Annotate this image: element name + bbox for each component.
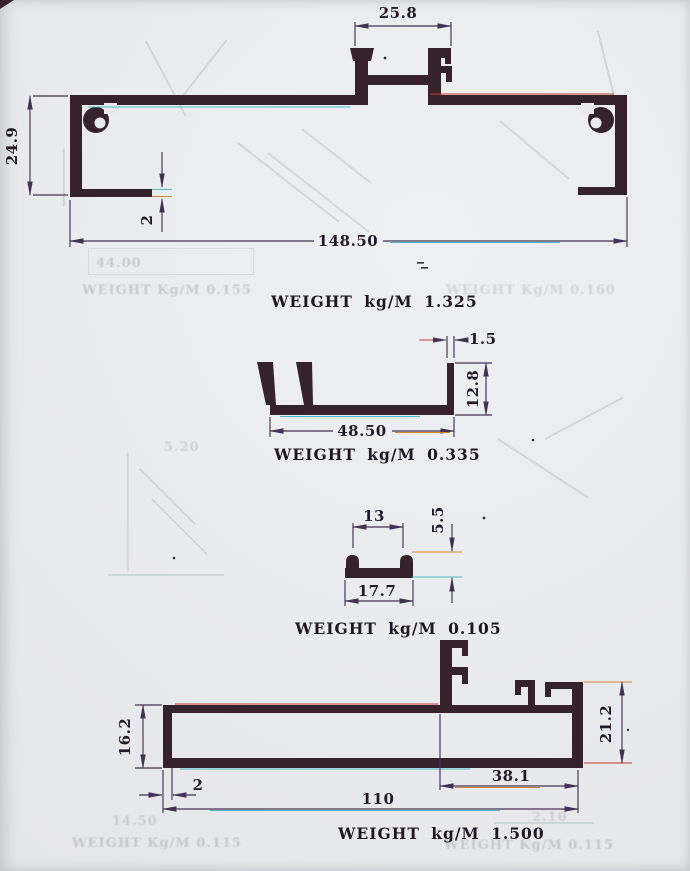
weight-caption-profile-4: WEIGHT kg/M 1.500: [337, 824, 545, 843]
dim-label-flange-thickness: 2: [138, 215, 156, 226]
dim-label-wall-thickness: 1.5: [469, 330, 497, 348]
profile-1-cross-section: [70, 48, 627, 197]
dim-label-left-height: 16.2: [116, 718, 134, 757]
profile-2-cross-section: [257, 362, 454, 415]
weight-caption-profile-2: WEIGHT kg/M 0.335: [273, 445, 481, 464]
figure-profile-1: 25.8 24.9 2 148.50 WEIGHT kg/M 1.325: [3, 4, 627, 311]
scan-corner-mark: [0, 0, 14, 9]
figure-profile-3: 13 5.5 17.7 WEIGHT kg/M 0.105: [294, 506, 502, 638]
dim-label-right-height: 12.8: [464, 370, 482, 409]
dim-label-height: 5.5: [429, 506, 447, 534]
profile-1-dimension-lines: [30, 22, 627, 247]
dim-label-base-width: 17.7: [358, 582, 397, 600]
figure-profile-4: 16.2 2 38.1 110 21.2 WEIGHT kg/M 1.500: [116, 640, 632, 843]
weight-caption-profile-3: WEIGHT kg/M 0.105: [294, 619, 502, 638]
profile-3-cross-section: [345, 555, 413, 578]
figure-profile-2: 1.5 12.8 48.50 WEIGHT kg/M 0.335: [257, 330, 497, 464]
extrusion-profiles-drawing: 25.8 24.9 2 148.50 WEIGHT kg/M 1.325: [0, 0, 690, 871]
dim-label-left-height: 24.9: [3, 127, 21, 166]
dim-label-wall-thickness: 2: [193, 776, 204, 794]
dim-label-overall-width: 148.50: [318, 232, 378, 250]
dim-label-top-width: 25.8: [379, 4, 418, 22]
scanned-drawing-page: 44.00 WEIGHT Kg/M 0.155 WEIGHT Kg/M 0.16…: [0, 0, 690, 871]
dim-label-base-width: 48.50: [337, 422, 386, 440]
dim-label-base-width: 110: [362, 790, 395, 808]
weight-caption-profile-1: WEIGHT kg/M 1.325: [270, 292, 478, 311]
dim-label-top-width: 13: [363, 507, 385, 525]
dim-label-right-section-width: 38.1: [492, 767, 531, 785]
dim-label-right-height: 21.2: [597, 705, 615, 744]
